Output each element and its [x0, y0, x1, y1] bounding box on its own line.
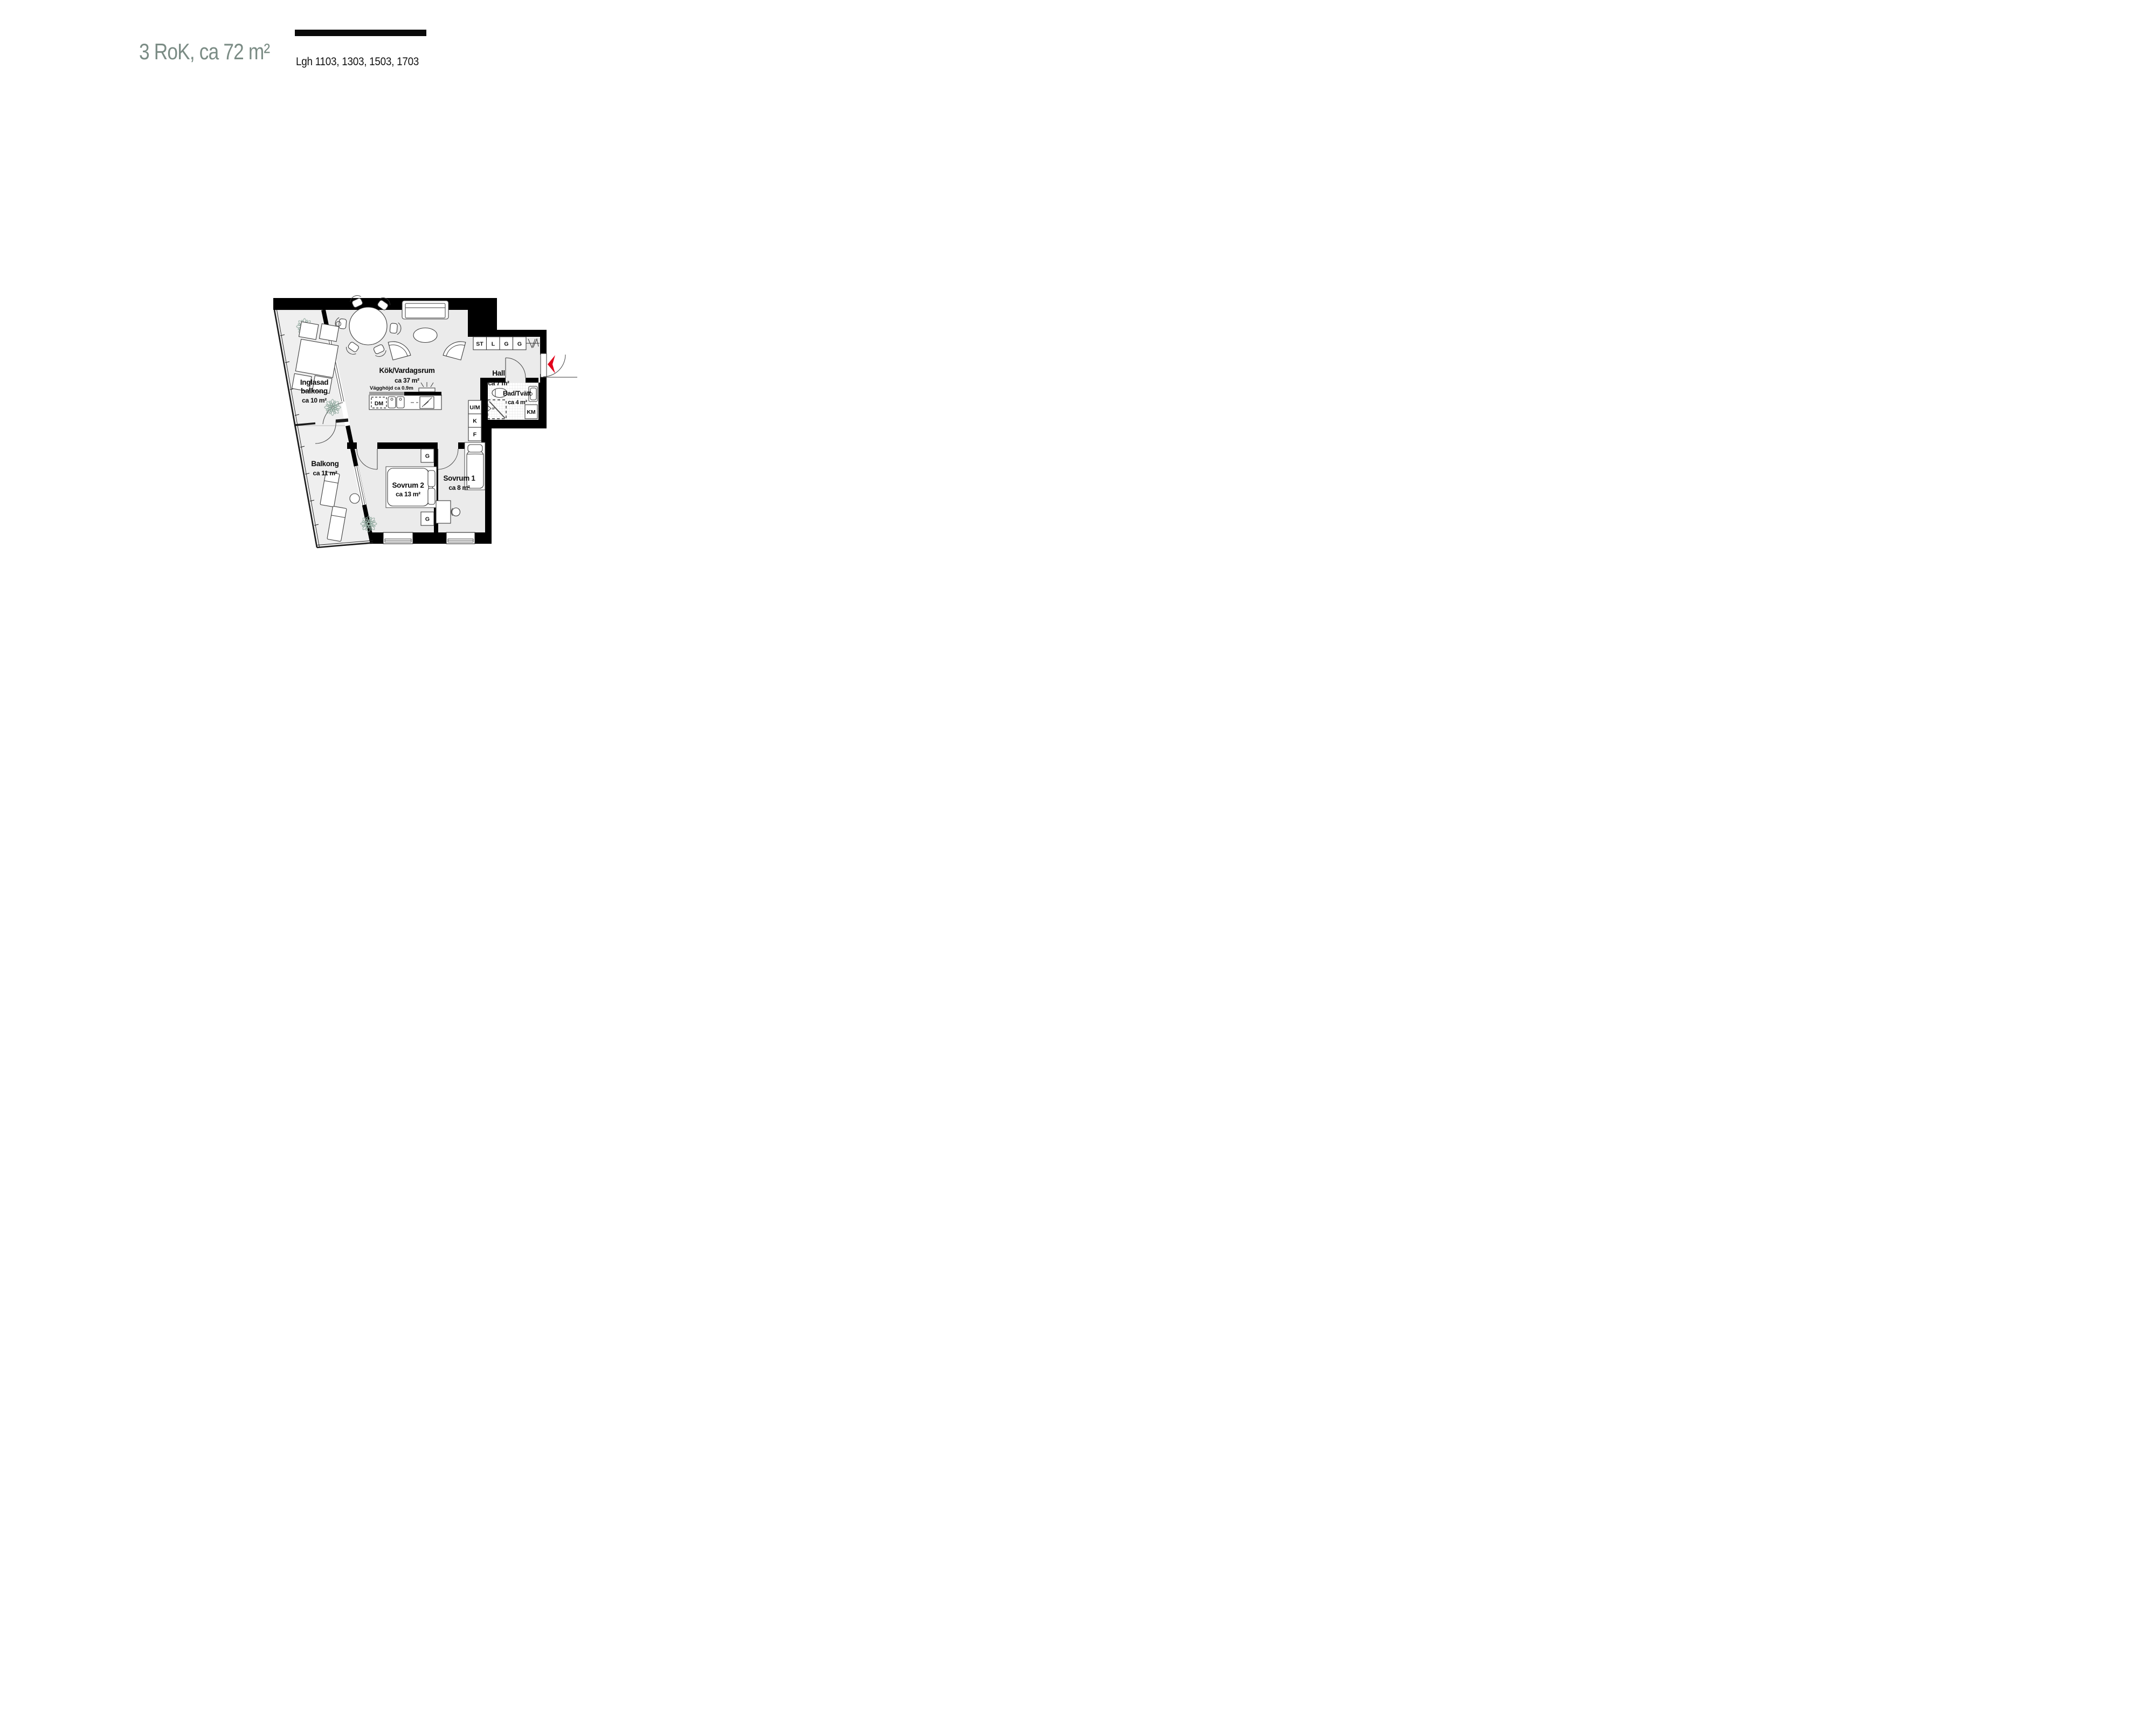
- bedroom1-name: Sovrum 1: [443, 474, 475, 482]
- balcony-chair-2: [319, 324, 338, 342]
- wall-bedroom1-right: [485, 428, 492, 544]
- closet-g1-label: G: [504, 341, 508, 348]
- balcony-partition-2: [336, 420, 348, 421]
- balcony-side-table: [350, 494, 360, 503]
- closet-g2-label: G: [517, 341, 522, 348]
- bedroom2-wardrobe-bottom-label: G: [425, 516, 430, 523]
- oven-microwave-label: U/M: [469, 405, 480, 411]
- balcony-name: Balkong: [311, 460, 338, 468]
- wall-hall-top: [497, 330, 547, 337]
- kitchen-living-name: Kök/Vardagsrum: [379, 366, 434, 375]
- floorplan-svg: DM Vägghöjd ca 0.9m U/M K: [0, 0, 841, 670]
- appliance-column: U/M K F: [468, 400, 481, 441]
- wall-bottom-3: [475, 532, 492, 544]
- glazed-balcony-area: ca 10 m²: [302, 397, 327, 404]
- closet-l-label: L: [492, 341, 495, 348]
- wall-bath-bottom: [480, 420, 547, 428]
- washing-machine-label: KM: [527, 409, 536, 415]
- wall-block-top-right: [468, 298, 497, 337]
- bedroom2-wardrobe-top-label: G: [425, 453, 430, 460]
- glazed-balcony-name-2: balkong: [301, 387, 328, 395]
- entrance-arrow-icon: [548, 355, 555, 373]
- bath-area: ca 4 m²: [508, 399, 527, 406]
- sofa: [402, 301, 448, 319]
- hall-name: Hall: [492, 369, 505, 377]
- kitchen-back-wall: [404, 392, 441, 396]
- coffee-table: [413, 328, 437, 343]
- closet-st-label: ST: [476, 341, 483, 348]
- freezer-label: F: [473, 432, 477, 438]
- bedroom2-area: ca 13 m²: [396, 490, 420, 498]
- balcony-chair-1: [299, 322, 319, 340]
- bedroom2-name: Sovrum 2: [392, 481, 424, 489]
- floorplan-page: 3 RoK, ca 72 m² Lgh 1103, 1303, 1503, 17…: [0, 0, 841, 670]
- wall-hall-right-upper: [540, 337, 547, 355]
- bedroom1-bed: [465, 442, 485, 490]
- kitchen-living-area: ca 37 m²: [395, 377, 419, 384]
- wall-bottom-2: [413, 532, 446, 544]
- fridge-label: K: [473, 418, 477, 425]
- kitchen-low-wall: [369, 392, 404, 396]
- wall-bedrooms-top-2: [377, 442, 438, 449]
- glazed-balcony-name-1: Inglasad: [300, 378, 328, 386]
- balcony-table: [295, 339, 338, 377]
- balcony-area: ca 11 m²: [313, 469, 337, 477]
- bedroom1-window: [446, 532, 475, 544]
- bedroom2-window: [383, 532, 413, 544]
- bedroom1-area: ca 8 m²: [448, 484, 470, 491]
- wall-bath-top-right: [526, 378, 538, 383]
- wall-bath-right: [538, 383, 547, 421]
- dishwasher-label: DM: [375, 400, 384, 407]
- bath-name: Bad/Tvätt: [503, 390, 531, 397]
- entrance-door-leaf[interactable]: [541, 354, 547, 377]
- wall-height-note: Vägghöjd ca 0.9m: [370, 385, 413, 391]
- hall-closets: ST L G G: [473, 337, 526, 350]
- hall-area: ca 7 m²: [488, 379, 509, 387]
